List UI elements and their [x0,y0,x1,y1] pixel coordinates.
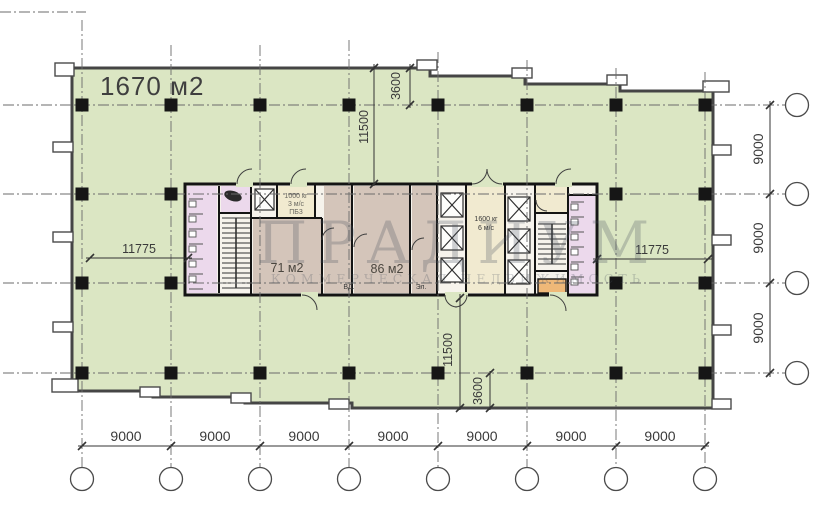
grid-bubble [786,94,809,117]
column-marker [610,367,623,380]
dim-label-depth-bottom: 11500 [441,333,455,367]
column-marker [76,99,89,112]
column-marker [521,99,534,112]
grid-bubble [71,468,94,491]
fin-bottom-step [231,393,251,403]
dim-label-span: 9000 [288,428,319,444]
fin-top-step [417,60,437,70]
grid-bubble [338,468,361,491]
column-marker [432,99,445,112]
fin-top-step [607,75,627,85]
dim-label-span: 9000 [199,428,230,444]
column-marker [521,367,534,380]
fin-top-left-corner [55,63,74,76]
dim-label-span: 9000 [466,428,497,444]
grid-bubble [160,468,183,491]
grid-bubble [249,468,272,491]
column-marker [165,277,178,290]
fin-right [712,235,731,245]
column-marker [254,99,267,112]
column-marker [76,277,89,290]
column-marker [699,277,712,290]
floor-plan-canvas: 9000 9000 9000 9000 9000 9000 9000 9000 … [0,0,833,506]
dim-label-span: 9000 [644,428,675,444]
fin-bottom-step [140,387,160,397]
column-marker [699,367,712,380]
grid-bubble [694,468,717,491]
fin-bottom-left-corner [52,379,78,392]
column-marker [165,188,178,201]
column-marker [432,367,445,380]
grid-bubble [786,183,809,206]
fin-right [712,145,731,155]
column-marker [76,188,89,201]
column-marker [343,367,356,380]
fin-left [53,232,73,242]
floor-plan-drawing: 9000 9000 9000 9000 9000 9000 9000 9000 … [0,0,833,506]
fin-right [712,325,731,335]
column-marker [76,367,89,380]
dim-label-span: 9000 [750,312,766,343]
column-marker [699,188,712,201]
dim-label-offset-bottom: 3600 [471,377,485,405]
elevator-shaft-icon [255,189,274,210]
fin-left [53,322,73,332]
dim-label-span: 9000 [555,428,586,444]
dim-label-width-left: 11775 [122,242,156,256]
column-marker [699,99,712,112]
dim-label-offset-top: 3600 [389,72,403,100]
column-marker [610,99,623,112]
grid-bubble [786,272,809,295]
fin-bottom-right-corner [712,399,731,409]
watermark-subtitle: КОММЕРЧЕСКАЯ НЕДВИЖИМОСТЬ [271,271,645,286]
dim-label-depth-top: 11500 [357,110,371,144]
dim-label-span: 9000 [110,428,141,444]
dim-label-span: 9000 [750,222,766,253]
watermark-title: ПРАДИУМ [257,209,660,277]
grid-bubble [516,468,539,491]
grid-bubble [605,468,628,491]
grid-bubble [427,468,450,491]
dim-label-span: 9000 [750,133,766,164]
floor-area-label: 1670 м2 [100,71,204,101]
fin-left [53,142,73,152]
fin-top-right-corner [703,81,729,92]
dim-label-span: 9000 [377,428,408,444]
column-marker [343,99,356,112]
column-marker [165,367,178,380]
fire-lift-speed-label: 3 м/с [288,201,305,208]
fin-bottom-step [329,399,349,409]
fin-top-step [512,68,532,78]
column-marker [254,367,267,380]
fire-lift-capacity-label: 1000 кг [284,193,308,200]
watermark: ПРАДИУМ КОММЕРЧЕСКАЯ НЕДВИЖИМОСТЬ [257,209,660,286]
grid-bubble [786,362,809,385]
column-marker [610,188,623,201]
